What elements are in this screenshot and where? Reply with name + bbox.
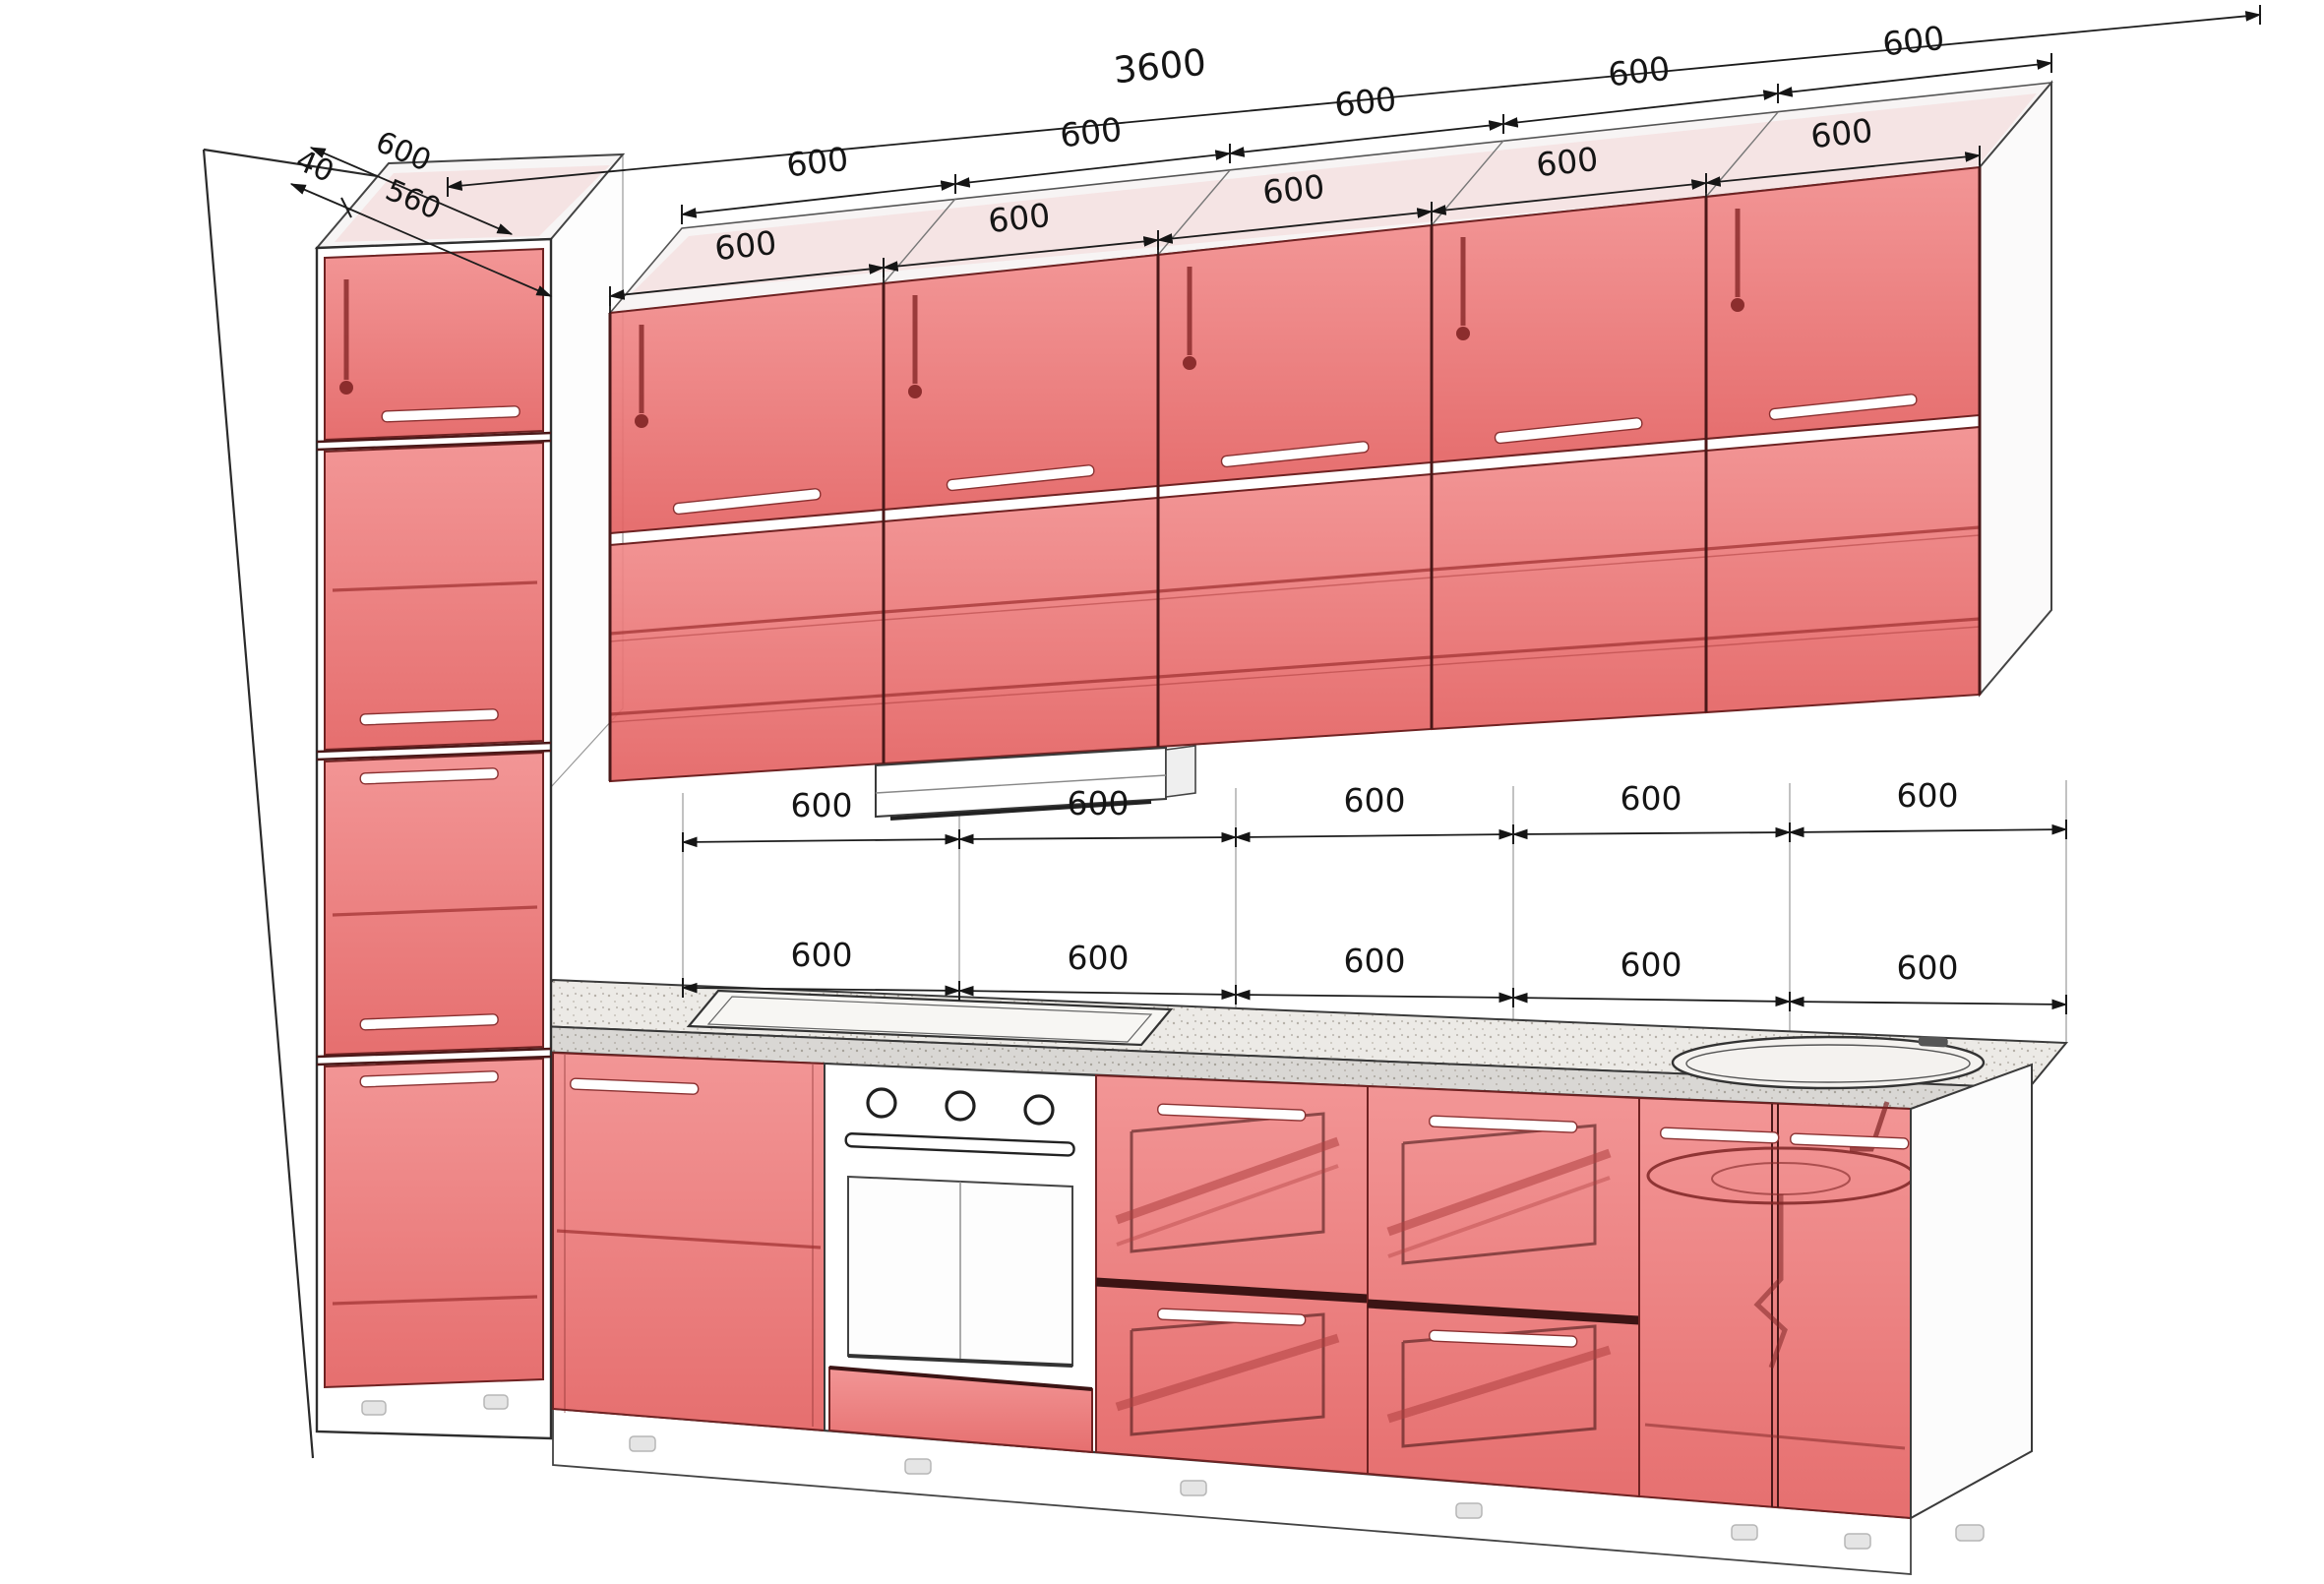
gas-strut-icon bbox=[339, 381, 353, 395]
dim-label-top-back-4: 600 bbox=[1606, 49, 1672, 94]
base-cabinet-door bbox=[553, 1053, 825, 1431]
dim-label-top-back-5: 600 bbox=[1880, 19, 1946, 64]
kitchen-drawing: 3600 600 600 600 600 600 bbox=[0, 0, 2324, 1584]
dim-label-top-front-3: 600 bbox=[1260, 167, 1326, 212]
dim-label-top-back-3: 600 bbox=[1332, 80, 1398, 125]
dim-label-mid-upper-1: 600 bbox=[791, 786, 853, 824]
faucet-icon bbox=[1918, 1036, 1947, 1048]
dim-label-mid-lower-1: 600 bbox=[791, 936, 853, 974]
gas-strut-icon bbox=[908, 385, 922, 398]
dim-label-top-front-4: 600 bbox=[1534, 140, 1600, 184]
oven-knob bbox=[947, 1092, 974, 1120]
dim-label-mid-lower-3: 600 bbox=[1344, 942, 1406, 980]
oven-knob bbox=[1025, 1096, 1053, 1124]
wall-end-panel bbox=[1980, 83, 2051, 695]
drawer-stack-2 bbox=[1368, 1086, 1639, 1496]
dim-label-total: 3600 bbox=[1112, 41, 1208, 92]
drawer-stack-1 bbox=[1096, 1075, 1368, 1474]
kitchen-drawing-page: 3600 600 600 600 600 600 bbox=[0, 0, 2324, 1584]
gas-strut-icon bbox=[1731, 298, 1744, 312]
sink-cutout bbox=[1673, 1036, 1984, 1088]
dim-label-mid-lower-2: 600 bbox=[1068, 939, 1130, 977]
dim-label-top-back-2: 600 bbox=[1058, 110, 1124, 155]
dim-label-mid-upper-2: 600 bbox=[1068, 784, 1130, 822]
oven bbox=[825, 1064, 1096, 1452]
dim-label-mid-upper-3: 600 bbox=[1344, 781, 1406, 820]
dim-label-mid-lower-4: 600 bbox=[1621, 945, 1682, 984]
oven-knob bbox=[868, 1089, 895, 1117]
sink-cabinet bbox=[1639, 1098, 1914, 1518]
tall-door-middle bbox=[325, 753, 543, 1055]
dim-label-mid-upper-5: 600 bbox=[1897, 776, 1959, 815]
dim-label-mid-upper-4: 600 bbox=[1621, 779, 1682, 818]
dim-label-top-front-1: 600 bbox=[712, 223, 778, 268]
dim-label-top-front-5: 600 bbox=[1808, 111, 1874, 155]
gas-strut-icon bbox=[1456, 327, 1470, 340]
tall-door-lower bbox=[325, 1059, 543, 1387]
dim-label-mid-lower-5: 600 bbox=[1897, 948, 1959, 987]
dim-label-top-back-1: 600 bbox=[784, 140, 850, 185]
gas-strut-icon bbox=[635, 414, 648, 428]
dim-label-top-front-2: 600 bbox=[986, 196, 1052, 240]
tall-door-upper bbox=[325, 443, 543, 750]
gas-strut-icon bbox=[1183, 356, 1196, 370]
